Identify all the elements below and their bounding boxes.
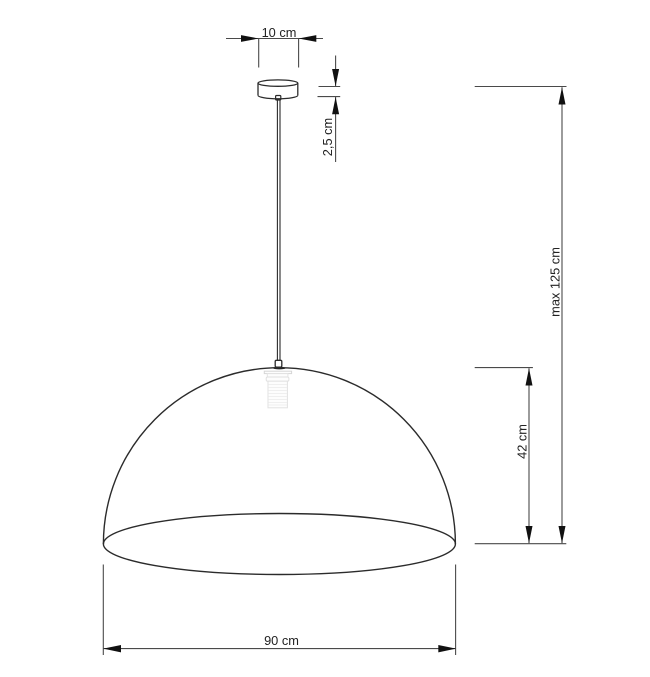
svg-text:max 125 cm: max 125 cm [548,247,563,317]
svg-text:10 cm: 10 cm [262,25,297,40]
svg-text:2,5 cm: 2,5 cm [320,118,335,156]
svg-text:90 cm: 90 cm [264,633,299,648]
svg-text:42 cm: 42 cm [514,424,529,459]
